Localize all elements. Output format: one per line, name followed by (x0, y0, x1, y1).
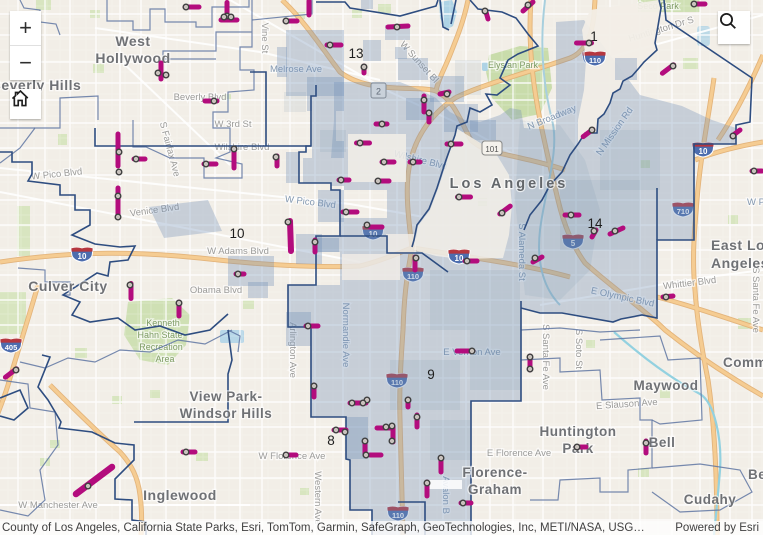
svg-text:Bell: Bell (649, 435, 676, 450)
svg-text:Graham: Graham (468, 482, 522, 497)
svg-text:S Santa Fe Ave: S Santa Fe Ave (540, 324, 551, 390)
svg-text:Elysian Park: Elysian Park (488, 60, 539, 70)
svg-text:10: 10 (455, 254, 464, 263)
svg-text:East Los: East Los (711, 237, 763, 253)
svg-text:Inglewood: Inglewood (143, 487, 217, 503)
svg-text:Cudahy: Cudahy (684, 492, 737, 507)
svg-text:S Santa Fe Ave: S Santa Fe Ave (750, 267, 761, 333)
svg-text:Maywood: Maywood (633, 378, 698, 393)
svg-text:Commerce: Commerce (723, 355, 763, 370)
svg-text:W P: W P (747, 197, 763, 208)
svg-text:W Manchester Ave: W Manchester Ave (18, 500, 98, 511)
svg-text:West: West (115, 33, 150, 49)
svg-text:Wilshire Blvd: Wilshire Blvd (215, 142, 270, 153)
svg-text:Area: Area (155, 354, 174, 364)
svg-text:13: 13 (348, 46, 363, 61)
svg-text:E Florence Ave: E Florence Ave (487, 448, 551, 459)
svg-text:101: 101 (485, 145, 499, 154)
svg-text:View Park-: View Park- (189, 389, 262, 404)
svg-text:Obama Blvd: Obama Blvd (190, 285, 242, 296)
svg-text:Florence-: Florence- (462, 465, 527, 480)
svg-text:S Soto St: S Soto St (573, 329, 584, 369)
svg-text:Western Ave: Western Ave (312, 471, 323, 525)
svg-text:Angeles: Angeles (711, 255, 763, 271)
svg-text:405: 405 (5, 343, 18, 352)
svg-text:10: 10 (229, 226, 244, 241)
svg-text:W Adams Blvd: W Adams Blvd (207, 246, 269, 257)
svg-text:8: 8 (327, 433, 335, 448)
svg-text:110: 110 (589, 56, 601, 65)
svg-text:Culver City: Culver City (28, 278, 107, 294)
svg-text:10: 10 (699, 147, 708, 156)
svg-text:Vine St: Vine St (259, 23, 270, 54)
svg-text:Los Angeles: Los Angeles (450, 176, 569, 192)
svg-text:Windsor Hills: Windsor Hills (180, 406, 273, 421)
svg-text:9: 9 (427, 367, 435, 382)
svg-text:Huntington: Huntington (540, 424, 617, 439)
svg-text:Bell Gardens: Bell Gardens (748, 467, 763, 482)
svg-text:10: 10 (78, 252, 87, 261)
